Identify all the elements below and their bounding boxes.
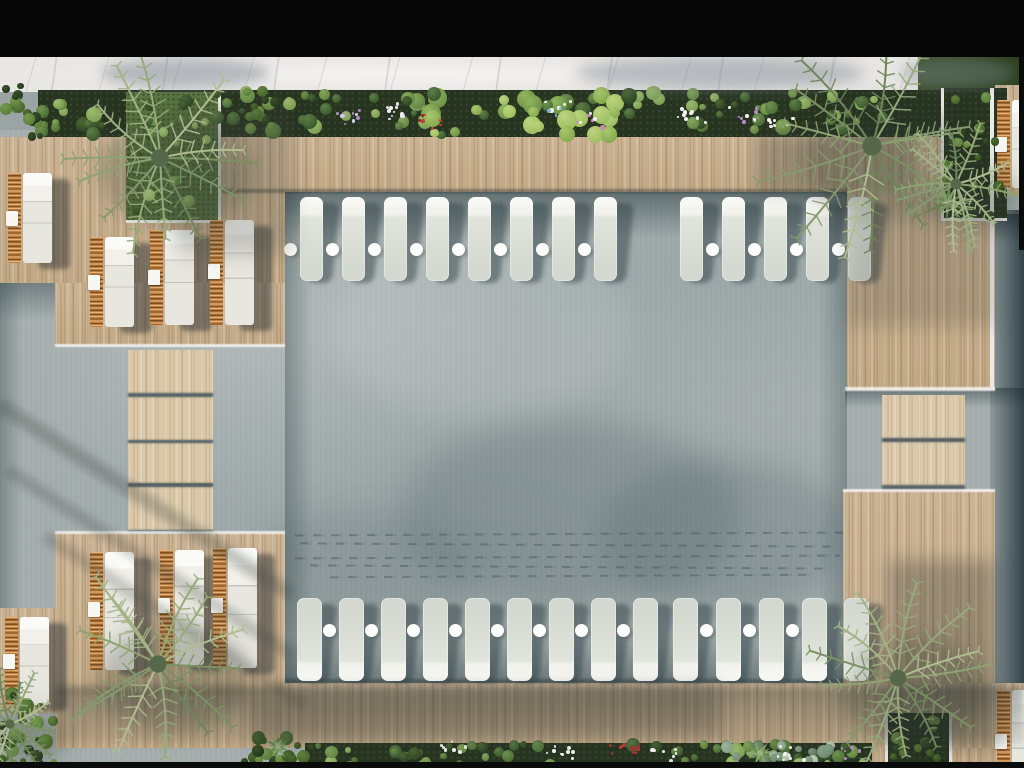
- plant-blob: [270, 97, 280, 107]
- frame-right-sliver: [1019, 57, 1024, 250]
- bridge-step-1: [128, 350, 213, 393]
- plant-blob: [402, 96, 412, 106]
- water-edge-foam: [845, 387, 995, 391]
- letterbox-top: [0, 0, 1024, 57]
- plant-blob: [308, 744, 316, 752]
- plant-blob: [37, 133, 43, 139]
- side-table: [536, 243, 549, 256]
- plant-blob: [740, 92, 750, 102]
- side-table: [449, 624, 462, 637]
- sun-lounger: [426, 197, 449, 281]
- side-table: [326, 243, 339, 256]
- plant-blob: [716, 111, 723, 118]
- pool-aerial-render: [0, 0, 1024, 768]
- flower-dot: [783, 752, 787, 756]
- side-table: [410, 243, 423, 256]
- towel: [148, 270, 160, 285]
- flower-dot: [689, 112, 693, 116]
- palm-tree: [50, 556, 266, 768]
- plant-blob: [325, 746, 338, 759]
- flower-dot: [458, 750, 462, 754]
- sun-lounger: [673, 598, 698, 681]
- plant-blob: [12, 93, 19, 100]
- side-table: [323, 624, 336, 637]
- sun-lounger: [549, 598, 574, 681]
- flower-dot: [728, 106, 731, 109]
- palm-tree: [0, 666, 68, 768]
- flower-dot: [569, 100, 572, 103]
- sun-lounger: [297, 598, 322, 681]
- flower-dot: [431, 127, 434, 130]
- sun-lounger: [759, 598, 784, 681]
- plant-blob: [440, 753, 446, 759]
- flower-dot: [387, 109, 391, 113]
- flower-dot: [672, 755, 675, 758]
- plant-blob: [302, 114, 317, 129]
- side-table: [365, 624, 378, 637]
- side-table: [743, 624, 756, 637]
- flower-dot: [742, 120, 746, 124]
- white-lounger: [23, 173, 52, 263]
- flower-dot: [563, 103, 566, 106]
- plant-blob: [28, 132, 36, 140]
- plant-blob: [2, 85, 10, 93]
- flower-dot: [630, 746, 634, 750]
- plant-blob: [503, 105, 516, 118]
- sun-lounger: [510, 197, 533, 281]
- side-table: [578, 243, 591, 256]
- side-table: [575, 624, 588, 637]
- flower-dot: [680, 107, 684, 111]
- sun-lounger: [468, 197, 491, 281]
- sun-lounger: [423, 598, 448, 681]
- palm-tree: [50, 48, 270, 268]
- sun-lounger: [384, 197, 407, 281]
- flower-dot: [418, 119, 421, 122]
- side-table: [368, 243, 381, 256]
- plant-blob: [687, 88, 699, 100]
- flower-dot: [587, 114, 590, 117]
- flower-dot: [352, 119, 356, 123]
- plant-blob: [499, 95, 509, 105]
- flower-dot: [593, 117, 597, 121]
- pool-step-gap-1: [882, 438, 965, 442]
- palm-tree: [794, 574, 1002, 768]
- left-arm-shade-edge: [0, 283, 22, 615]
- sun-lounger: [339, 598, 364, 681]
- side-table: [494, 243, 507, 256]
- flower-dot: [579, 121, 582, 124]
- flower-dot: [356, 116, 360, 120]
- water-edge-foam: [55, 344, 285, 347]
- flower-dot: [391, 115, 393, 117]
- flower-dot: [421, 119, 425, 123]
- plant-blob: [624, 108, 635, 119]
- plant-blob: [297, 750, 310, 763]
- sun-lounger: [465, 598, 490, 681]
- flower-dot: [546, 752, 548, 754]
- palm-tree: [888, 116, 1024, 252]
- flower-dot: [544, 101, 547, 104]
- flower-dot: [559, 107, 561, 109]
- flower-dot: [704, 121, 707, 124]
- sun-lounger: [381, 598, 406, 681]
- flower-dot: [745, 114, 749, 118]
- bridge-gap-3: [128, 483, 213, 487]
- flower-dot: [696, 116, 699, 119]
- plant-blob: [528, 107, 539, 118]
- towel: [88, 275, 100, 290]
- water-edge-foam: [843, 489, 995, 492]
- sun-lounger: [342, 197, 365, 281]
- flower-dot: [632, 751, 635, 754]
- plant-blob: [699, 104, 705, 110]
- plant-blob: [430, 129, 438, 137]
- side-table: [617, 624, 630, 637]
- flower-dot: [611, 752, 614, 755]
- flower-dot: [635, 745, 639, 749]
- plant-blob: [437, 131, 445, 139]
- sun-lounger: [680, 197, 703, 281]
- plant-blob: [408, 747, 421, 760]
- flower-dot: [789, 757, 792, 760]
- flower-dot: [609, 744, 612, 747]
- flower-dot: [571, 757, 574, 760]
- plant-blob: [450, 127, 460, 137]
- sun-lounger: [300, 197, 323, 281]
- pool-step-2: [882, 442, 965, 485]
- bridge-step-3: [128, 443, 213, 483]
- side-table: [452, 243, 465, 256]
- flower-dot: [675, 752, 677, 754]
- plant-blob: [17, 83, 23, 89]
- shadow-overlay: [250, 684, 721, 744]
- flower-dot: [552, 749, 555, 752]
- flower-dot: [547, 109, 551, 113]
- flower-dot: [571, 750, 575, 754]
- sun-lounger: [594, 197, 617, 281]
- plant-blob: [715, 99, 724, 108]
- bridge-gap-1: [128, 393, 213, 397]
- letterbox-bottom: [0, 762, 1024, 768]
- flower-dot: [600, 125, 604, 129]
- sun-lounger: [507, 598, 532, 681]
- side-table: [407, 624, 420, 637]
- sun-lounger: [633, 598, 658, 681]
- side-table: [706, 243, 719, 256]
- flower-dot: [452, 748, 456, 752]
- side-table: [491, 624, 504, 637]
- plant-blob: [427, 87, 441, 101]
- pool-step-1: [882, 395, 965, 438]
- side-table: [700, 624, 713, 637]
- plant-blob: [371, 109, 380, 118]
- flower-dot: [464, 745, 467, 748]
- flower-dot: [439, 119, 442, 122]
- sun-lounger: [716, 598, 741, 681]
- sun-lounger: [552, 197, 575, 281]
- bridge-step-2: [128, 397, 213, 440]
- flower-dot: [336, 112, 339, 115]
- plant-blob: [23, 113, 35, 125]
- flower-dot: [355, 113, 358, 116]
- sun-lounger: [722, 197, 745, 281]
- towel: [6, 211, 18, 226]
- flower-dot: [388, 118, 391, 121]
- sun-lounger: [591, 598, 616, 681]
- side-table: [533, 624, 546, 637]
- plant-blob: [621, 88, 637, 104]
- bridge-gap-2: [128, 440, 213, 443]
